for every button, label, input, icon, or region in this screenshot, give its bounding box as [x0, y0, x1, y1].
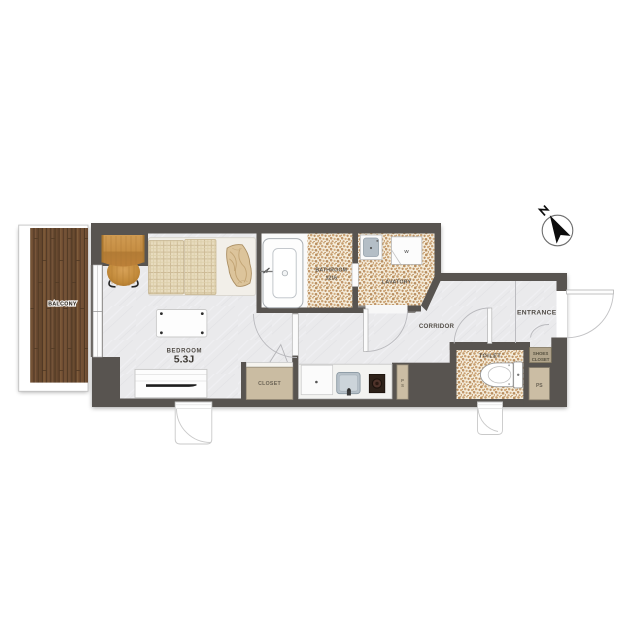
svg-text:5.3J: 5.3J	[174, 354, 195, 366]
svg-text:BATHROOM: BATHROOM	[315, 268, 347, 274]
svg-text:W: W	[404, 249, 409, 255]
svg-text:LAVATORY: LAVATORY	[382, 279, 412, 285]
svg-text:PS: PS	[536, 383, 543, 389]
svg-text:CLOSET: CLOSET	[532, 357, 550, 362]
svg-text:CORRIDOR: CORRIDOR	[419, 323, 455, 330]
svg-text:SHOES: SHOES	[533, 351, 548, 356]
svg-text:ENTRANCE: ENTRANCE	[517, 310, 557, 317]
svg-text:TOILET: TOILET	[479, 354, 502, 360]
svg-text:S: S	[401, 383, 404, 388]
svg-text:P: P	[401, 378, 404, 383]
svg-text:BALCONY: BALCONY	[48, 301, 77, 307]
svg-text:CLOSET: CLOSET	[258, 381, 281, 387]
svg-text:1216: 1216	[326, 276, 338, 282]
